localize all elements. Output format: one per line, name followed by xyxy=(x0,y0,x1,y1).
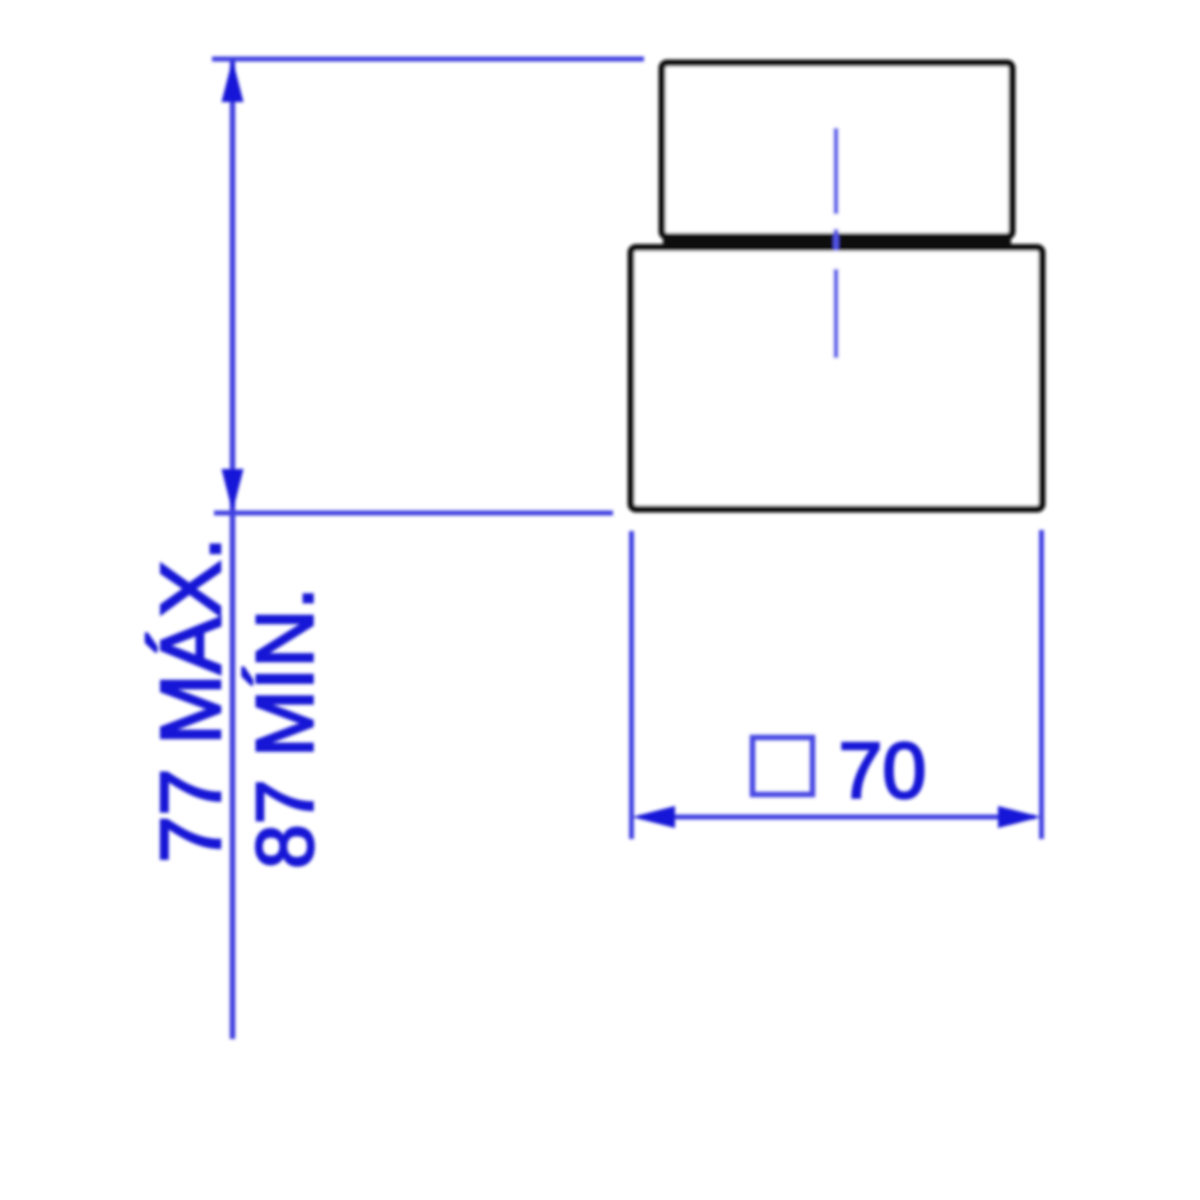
svg-text:70: 70 xyxy=(839,726,927,815)
svg-text:87 MÍN.: 87 MÍN. xyxy=(241,587,331,869)
svg-text:77 MÁX.: 77 MÁX. xyxy=(144,537,239,863)
